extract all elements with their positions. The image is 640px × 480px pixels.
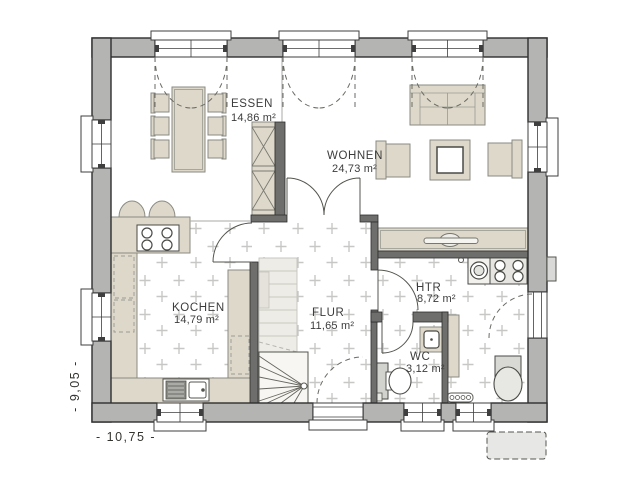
window-bottom-wc: [401, 403, 444, 431]
window-bottom-kochen: [154, 403, 206, 431]
area-kochen: 14,79 m²: [174, 314, 219, 326]
dining-chair: [154, 94, 169, 112]
coffee-table-top: [437, 147, 463, 173]
dining-chair: [208, 140, 223, 158]
wardrobe-body: [252, 122, 275, 215]
area-wc: 3,12 m²: [406, 363, 445, 375]
dimension-height: - 9,05 -: [68, 360, 82, 412]
double-door-wohnen: [287, 178, 360, 215]
washer-door: [474, 266, 484, 276]
window-bottom-htr: [453, 403, 494, 431]
wall-bottom: [92, 403, 157, 422]
dining-chair: [208, 94, 223, 112]
wall-left: [92, 38, 111, 120]
bar-stool: [149, 201, 175, 217]
stair-newel-post: [301, 383, 307, 389]
dryer-knob: [513, 272, 523, 282]
armchair-back: [512, 140, 522, 178]
burner: [162, 228, 172, 238]
wall-bottom: [441, 403, 456, 422]
wall-flur-htr-upper: [371, 222, 378, 270]
faucet: [201, 388, 205, 392]
wall-top: [355, 38, 412, 57]
area-htr: 8,72 m²: [417, 293, 456, 305]
casement-swing: [283, 57, 355, 108]
entrance-mat: [487, 432, 546, 459]
area-wohnen: 24,73 m²: [332, 163, 377, 175]
wall-kochen-flur: [250, 262, 258, 403]
wall-wc-top-left: [371, 312, 382, 322]
wall-wc-right: [442, 312, 448, 403]
floor-plan-canvas: ESSEN 14,86 m² WOHNEN 24,73 m² KOCHEN 14…: [0, 0, 640, 480]
window-left-essen: [81, 116, 111, 172]
decor-tray: [424, 238, 478, 244]
burner: [142, 228, 152, 238]
label-kochen: KOCHEN: [172, 302, 225, 314]
floor-plan-drawing: ESSEN 14,86 m² WOHNEN 24,73 m² KOCHEN 14…: [0, 0, 640, 480]
wall-bottom: [203, 403, 313, 422]
label-wohnen: WOHNEN: [327, 150, 383, 162]
wall-bottom: [363, 403, 404, 422]
wall-flur-top-right: [360, 215, 378, 222]
window-right-wohnen: [528, 118, 558, 176]
vent-grille: [447, 393, 473, 402]
label-flur: FLUR: [312, 307, 344, 319]
wall-right: [528, 38, 547, 122]
armchair-right: [488, 143, 512, 176]
stair-handrail: [259, 272, 269, 308]
wall-bottom: [491, 403, 547, 422]
label-essen: ESSEN: [231, 98, 273, 110]
bar-stool: [119, 201, 145, 217]
dining-set: [151, 87, 226, 172]
armchair-left: [386, 144, 410, 177]
wall-flur-top-left: [251, 215, 287, 222]
wc-faucet: [430, 338, 433, 341]
burner: [162, 240, 172, 250]
wall-essen-wohnen: [275, 122, 285, 217]
wall-top: [227, 38, 283, 57]
wall-left: [92, 168, 111, 293]
wardrobe-cabinet: [252, 122, 275, 215]
label-wc: WC: [410, 351, 430, 363]
dining-chair: [154, 140, 169, 158]
dryer-knob: [495, 261, 505, 271]
burner: [142, 240, 152, 250]
french-window-top-2: [279, 31, 359, 108]
dryer-knob: [495, 272, 505, 282]
utility-shelf: [448, 315, 459, 377]
dining-chair: [154, 117, 169, 135]
area-essen: 14,86 m²: [231, 112, 276, 124]
wall-right: [528, 172, 547, 292]
window-left-kochen: [81, 289, 111, 345]
wall-wc-left: [371, 322, 377, 403]
dining-table: [172, 87, 205, 172]
area-flur: 11,65 m²: [310, 320, 354, 332]
living-room-set: [376, 85, 528, 251]
wall-wohnen-htr: [378, 251, 528, 258]
dimension-width: - 10,75 -: [96, 430, 156, 444]
dryer-knob: [513, 261, 523, 271]
hot-water-tank: [494, 367, 522, 401]
kitchen-left-counter: [111, 253, 137, 378]
kitchen-right-counter: [228, 270, 252, 378]
dining-chair: [208, 117, 223, 135]
exterior-flue: [547, 257, 556, 281]
